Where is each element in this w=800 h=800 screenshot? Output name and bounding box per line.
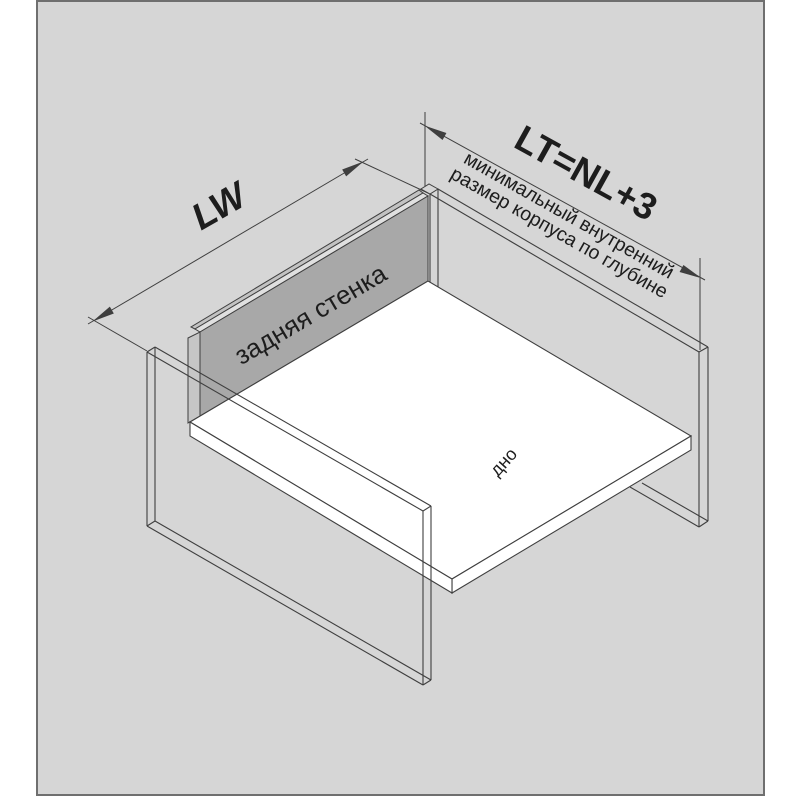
drawer-diagram: LW LT=NL+3 минимальный внутренний размер… xyxy=(0,0,800,800)
back-panel-left-end xyxy=(188,332,200,423)
screenshot-root: LW LT=NL+3 минимальный внутренний размер… xyxy=(0,0,800,800)
